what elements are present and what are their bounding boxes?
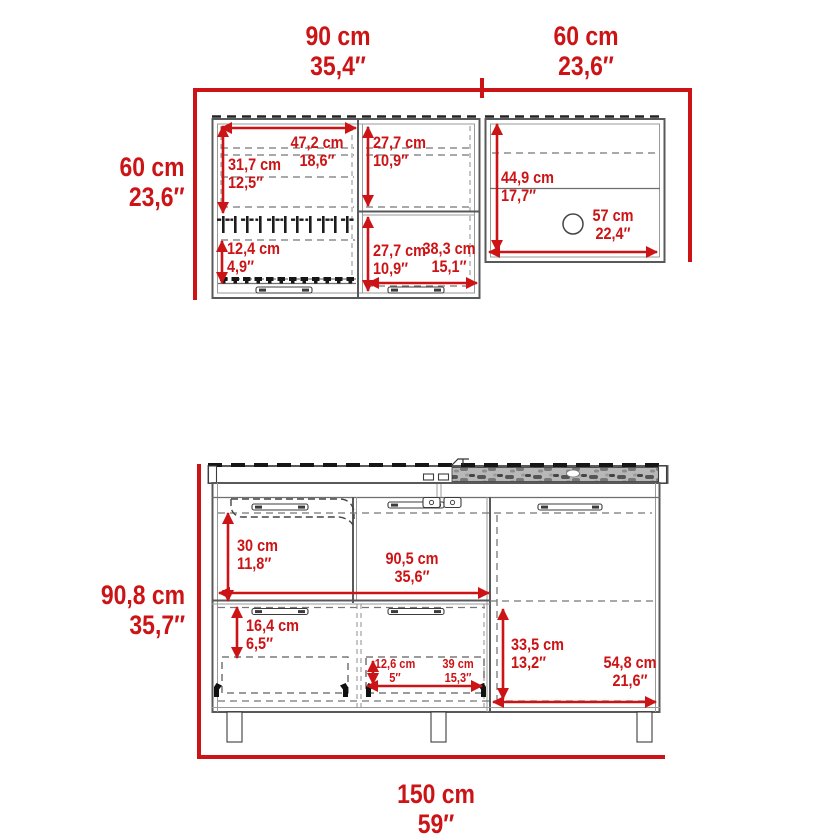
drawer-handle [252, 609, 308, 615]
dim-cm: 90,8 cm [101, 581, 185, 611]
dim-cm: 33,5 cm [511, 636, 564, 654]
dim-right-door-width: 54,8 cm 21,6″ [579, 654, 681, 690]
dim-upper-left-height: 30 cm 11,8″ [237, 537, 278, 573]
base-cabinet-drawing [208, 459, 668, 742]
door-handle [256, 287, 312, 293]
dim-bottom-overall-height: 90,8 cm 35,7″ [101, 581, 185, 641]
dim-cm: 90 cm [270, 22, 406, 52]
door-handle [538, 504, 602, 510]
dim-drawer-width: 39 cm 15,3″ [416, 657, 501, 686]
dim-top-overall-height: 60 cm 23,6″ [120, 153, 185, 213]
dim-lower-left-height: 16,4 cm 6,5″ [246, 617, 299, 653]
dim-right-cabinet-width: 57 cm 22,4″ [562, 207, 664, 243]
dim-cm: 54,8 cm [579, 654, 681, 672]
dim-in: 35,6″ [361, 568, 463, 586]
door-handle [252, 504, 308, 510]
dim-in: 23,6″ [120, 183, 185, 213]
dim-cm: 57 cm [562, 207, 664, 225]
dim-in: 15,3″ [416, 671, 501, 685]
dim-mid-upper-height: 27,7 cm 10,9″ [373, 134, 426, 170]
dim-in: 59″ [368, 810, 504, 840]
dim-left-door-width: 47,2 cm 18,6″ [266, 134, 368, 170]
dim-upper-width: 90,5 cm 35,6″ [361, 550, 463, 586]
dim-cm: 44,9 cm [501, 169, 554, 187]
dim-in: 18,6″ [266, 152, 368, 170]
dim-in: 21,6″ [579, 672, 681, 690]
leg [637, 712, 652, 742]
dim-in: 12,5″ [228, 174, 281, 192]
dim-cm: 38,3 cm [398, 240, 500, 258]
dim-cm: 60 cm [120, 153, 185, 183]
dim-cm: 30 cm [237, 537, 278, 555]
dim-cm: 31,7 cm [228, 156, 281, 174]
dim-in: 35,7″ [101, 611, 185, 641]
product-dimension-diagram: 90 cm 35,4″ 60 cm 23,6″ 60 cm 23,6″ 47,2… [0, 0, 840, 840]
dim-left-upper-height: 31,7 cm 12,5″ [228, 156, 281, 192]
cabinet-line-drawing [0, 0, 840, 840]
dim-right-door-height: 33,5 cm 13,2″ [511, 636, 564, 672]
dim-right-cabinet-height: 44,9 cm 17,7″ [501, 169, 554, 205]
leg [431, 712, 446, 742]
dim-left-lower-height: 12,4 cm 4,9″ [227, 240, 280, 276]
dim-bottom-overall-width: 150 cm 59″ [368, 780, 504, 840]
dim-cm: 39 cm [416, 657, 501, 671]
door-handle [388, 287, 444, 293]
dim-mid-width: 38,3 cm 15,1″ [398, 240, 500, 276]
dim-in: 6,5″ [246, 635, 299, 653]
dim-in: 10,9″ [373, 152, 426, 170]
dim-cm: 27,7 cm [373, 134, 426, 152]
dim-in: 13,2″ [511, 654, 564, 672]
dim-cm: 90,5 cm [361, 550, 463, 568]
dim-in: 23,6″ [518, 52, 654, 82]
dim-in: 17,7″ [501, 187, 554, 205]
dim-cm: 60 cm [518, 22, 654, 52]
dim-top-overall-width-left: 90 cm 35,4″ [270, 22, 406, 82]
dim-cm: 12,4 cm [227, 240, 280, 258]
dim-in: 22,4″ [562, 225, 664, 243]
dim-top-overall-width-right: 60 cm 23,6″ [518, 22, 654, 82]
dim-in: 15,1″ [398, 258, 500, 276]
leg [227, 712, 242, 742]
drawer-handle [388, 609, 444, 615]
dim-cm: 150 cm [368, 780, 504, 810]
hinge [423, 498, 440, 508]
countertop-texture [452, 468, 666, 482]
hinge [444, 498, 461, 508]
dim-in: 35,4″ [270, 52, 406, 82]
dim-in: 4,9″ [227, 258, 280, 276]
dim-cm: 16,4 cm [246, 617, 299, 635]
dim-cm: 47,2 cm [266, 134, 368, 152]
dim-in: 11,8″ [237, 555, 278, 573]
